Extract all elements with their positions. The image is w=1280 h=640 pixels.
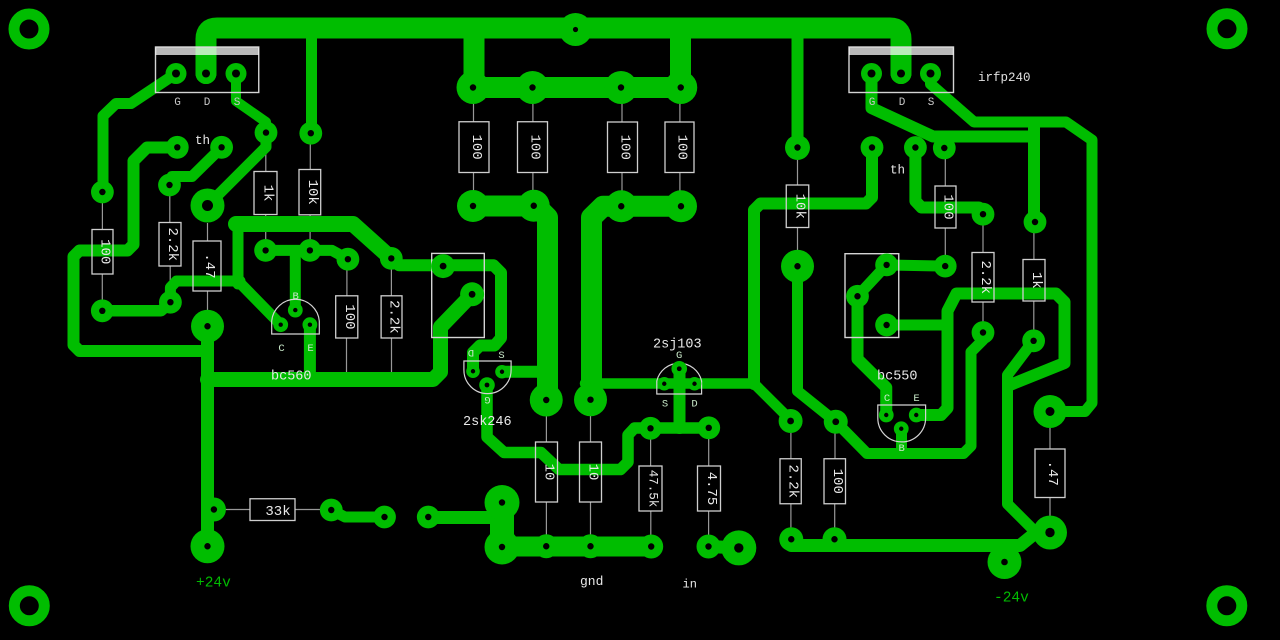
- svg-text:B: B: [898, 443, 904, 455]
- svg-text:100: 100: [341, 304, 357, 329]
- svg-text:100: 100: [617, 135, 633, 160]
- svg-text:S: S: [662, 399, 668, 411]
- svg-text:S: S: [928, 97, 935, 109]
- svg-text:irfp240: irfp240: [978, 71, 1031, 85]
- svg-text:47.5k: 47.5k: [646, 470, 660, 508]
- svg-text:E: E: [913, 393, 919, 405]
- svg-text:2.2k: 2.2k: [785, 464, 801, 498]
- svg-text:100: 100: [97, 239, 113, 264]
- svg-text:+24v: +24v: [196, 576, 231, 592]
- svg-text:100: 100: [468, 134, 484, 159]
- svg-text:S: S: [498, 350, 504, 362]
- svg-text:th: th: [890, 164, 905, 178]
- svg-text:gnd: gnd: [580, 574, 603, 589]
- svg-text:100: 100: [829, 469, 845, 494]
- svg-text:D: D: [468, 346, 474, 358]
- svg-text:C: C: [884, 393, 890, 405]
- svg-text:2.2k: 2.2k: [977, 260, 993, 294]
- svg-text:10: 10: [585, 464, 601, 481]
- svg-text:100: 100: [940, 194, 956, 219]
- svg-text:E: E: [307, 343, 313, 355]
- svg-text:D: D: [899, 97, 906, 109]
- svg-text:1k: 1k: [260, 185, 276, 202]
- svg-text:100: 100: [674, 135, 690, 160]
- svg-text:-24v: -24v: [994, 591, 1029, 607]
- svg-text:C: C: [278, 343, 284, 355]
- svg-text:33k: 33k: [265, 504, 290, 520]
- svg-text:1k: 1k: [1028, 272, 1044, 289]
- svg-text:G: G: [869, 97, 876, 109]
- svg-text:100: 100: [527, 134, 543, 159]
- svg-text:in: in: [683, 578, 697, 592]
- svg-text:.47: .47: [1044, 461, 1060, 486]
- svg-text:2.2k: 2.2k: [164, 227, 180, 261]
- svg-text:.47: .47: [201, 253, 217, 278]
- svg-text:G: G: [484, 393, 490, 405]
- svg-text:S: S: [234, 97, 241, 109]
- svg-text:G: G: [174, 97, 181, 109]
- svg-text:4.75: 4.75: [703, 472, 719, 506]
- svg-text:D: D: [691, 399, 697, 411]
- svg-text:th: th: [195, 134, 210, 148]
- svg-text:B: B: [293, 291, 299, 303]
- svg-text:bc560: bc560: [271, 370, 312, 385]
- svg-text:10: 10: [541, 464, 557, 481]
- svg-text:10k: 10k: [304, 180, 320, 205]
- svg-text:2.2k: 2.2k: [386, 300, 402, 334]
- svg-text:2sk246: 2sk246: [463, 415, 512, 430]
- svg-text:bc550: bc550: [877, 370, 918, 385]
- svg-text:D: D: [204, 97, 211, 109]
- svg-text:10k: 10k: [792, 194, 808, 219]
- svg-text:G: G: [676, 350, 682, 362]
